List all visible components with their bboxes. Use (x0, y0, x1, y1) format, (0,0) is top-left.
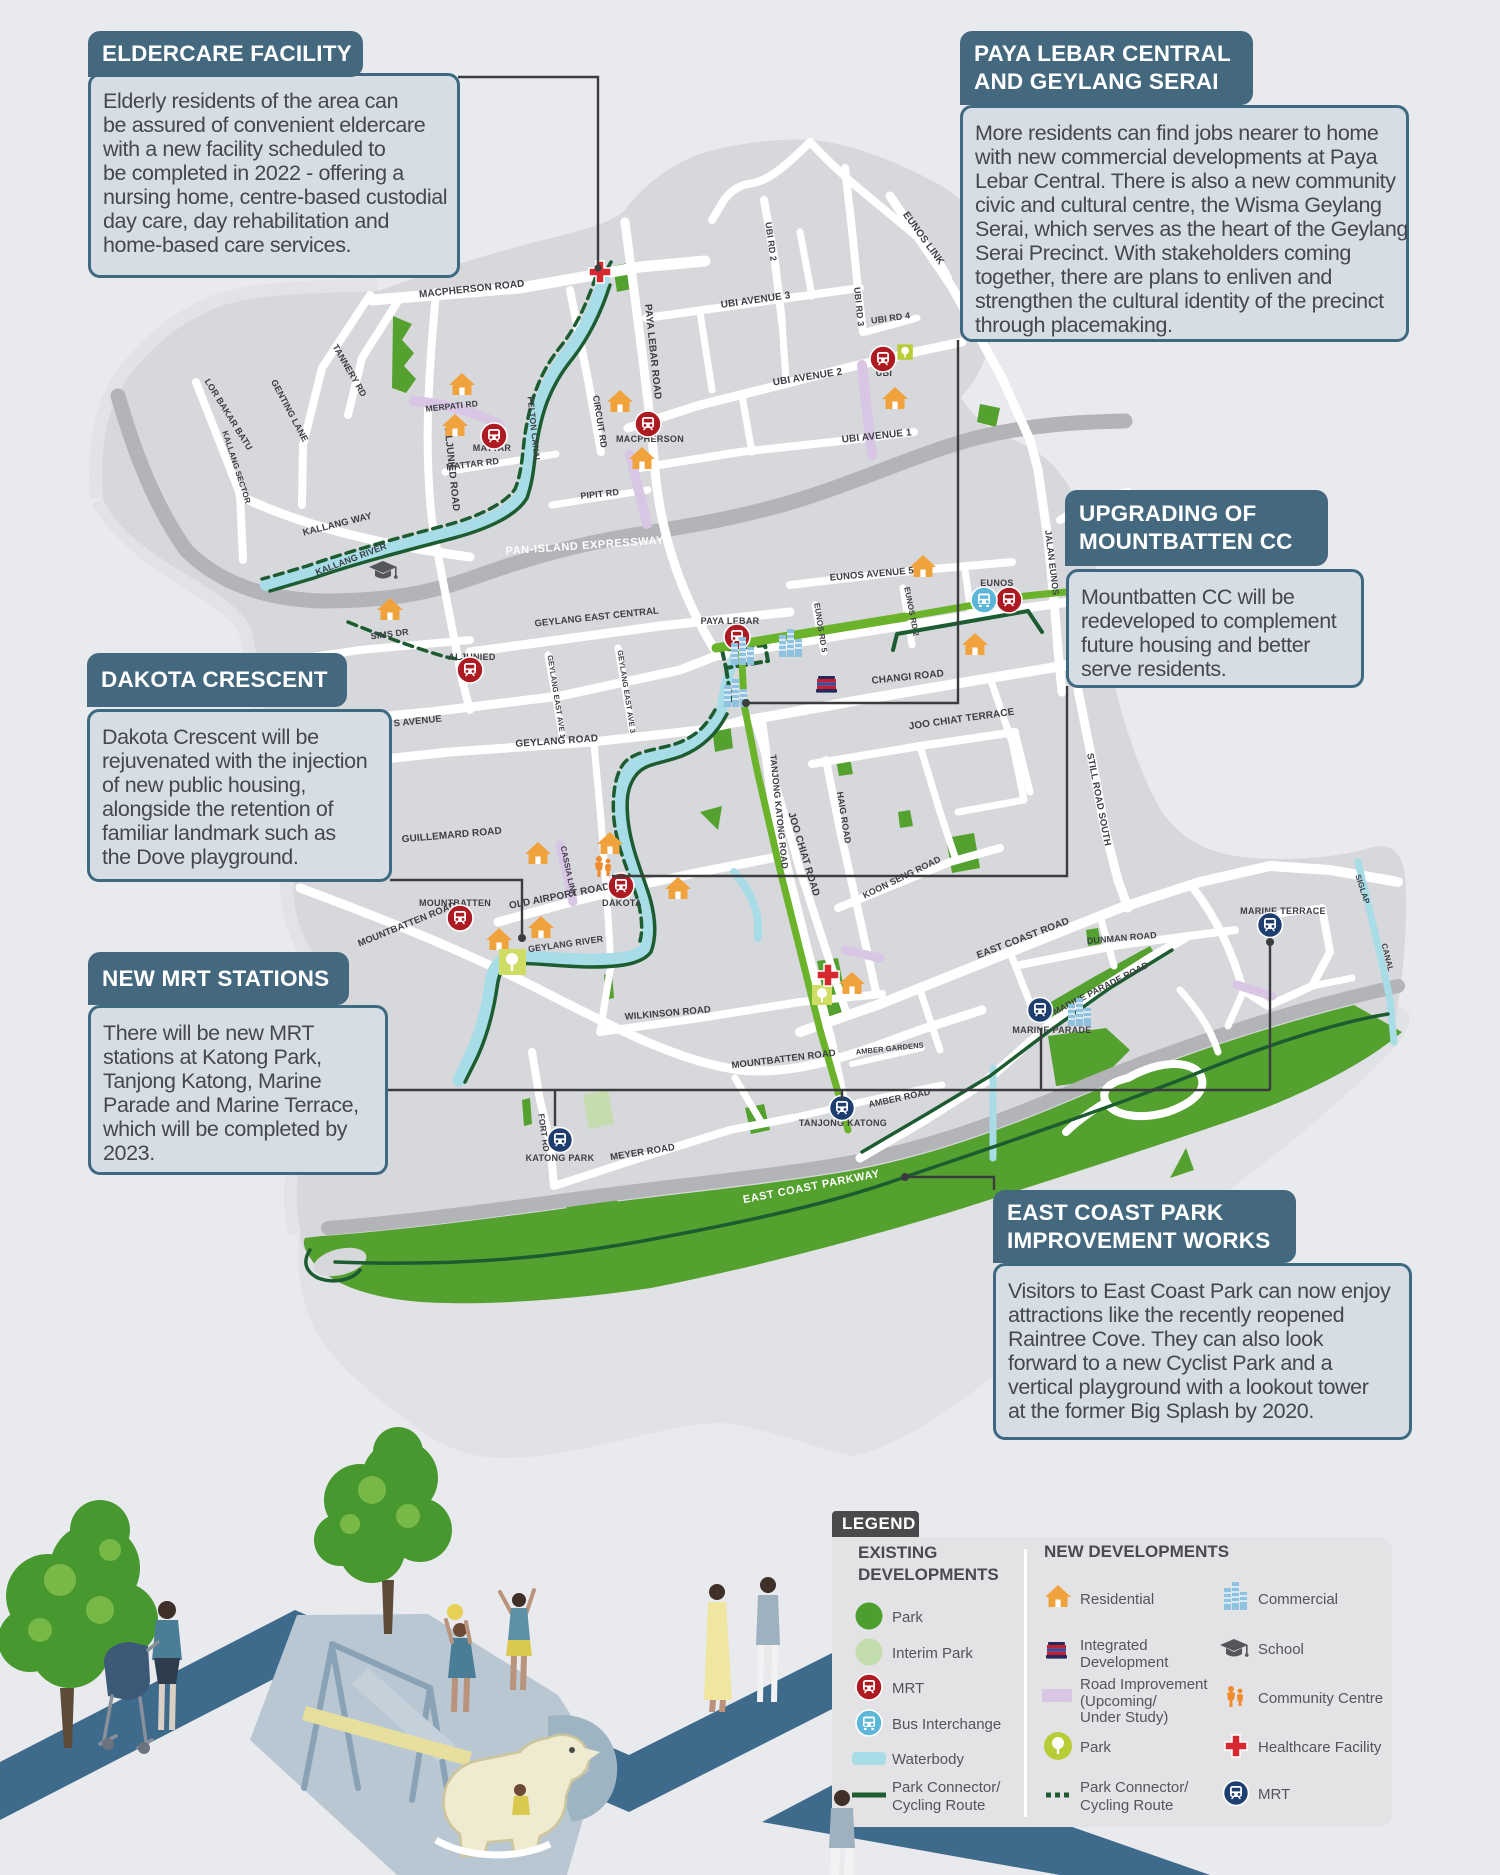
svg-text:Park: Park (1080, 1739, 1111, 1756)
svg-text:MRT: MRT (1258, 1786, 1290, 1803)
svg-text:Healthcare Facility: Healthcare Facility (1258, 1739, 1382, 1756)
svg-text:Park Connector/: Park Connector/ (892, 1779, 1001, 1796)
svg-text:(Upcoming/: (Upcoming/ (1080, 1693, 1158, 1710)
svg-text:Integrated: Integrated (1080, 1637, 1148, 1654)
svg-text:Cycling Route: Cycling Route (1080, 1797, 1173, 1814)
svg-text:Park: Park (892, 1609, 923, 1626)
svg-text:Bus Interchange: Bus Interchange (892, 1716, 1001, 1733)
svg-text:Interim Park: Interim Park (892, 1645, 973, 1662)
svg-text:School: School (1258, 1641, 1304, 1658)
svg-text:Development: Development (1080, 1654, 1169, 1671)
svg-text:Road Improvement: Road Improvement (1080, 1676, 1208, 1693)
svg-text:MRT: MRT (892, 1680, 924, 1697)
svg-text:Under Study): Under Study) (1080, 1709, 1168, 1726)
svg-text:Cycling Route: Cycling Route (892, 1797, 985, 1814)
svg-text:Commercial: Commercial (1258, 1591, 1338, 1608)
svg-text:Community Centre: Community Centre (1258, 1690, 1383, 1707)
svg-text:Park Connector/: Park Connector/ (1080, 1779, 1189, 1796)
svg-text:Waterbody: Waterbody (892, 1751, 964, 1768)
svg-text:Residential: Residential (1080, 1591, 1154, 1608)
